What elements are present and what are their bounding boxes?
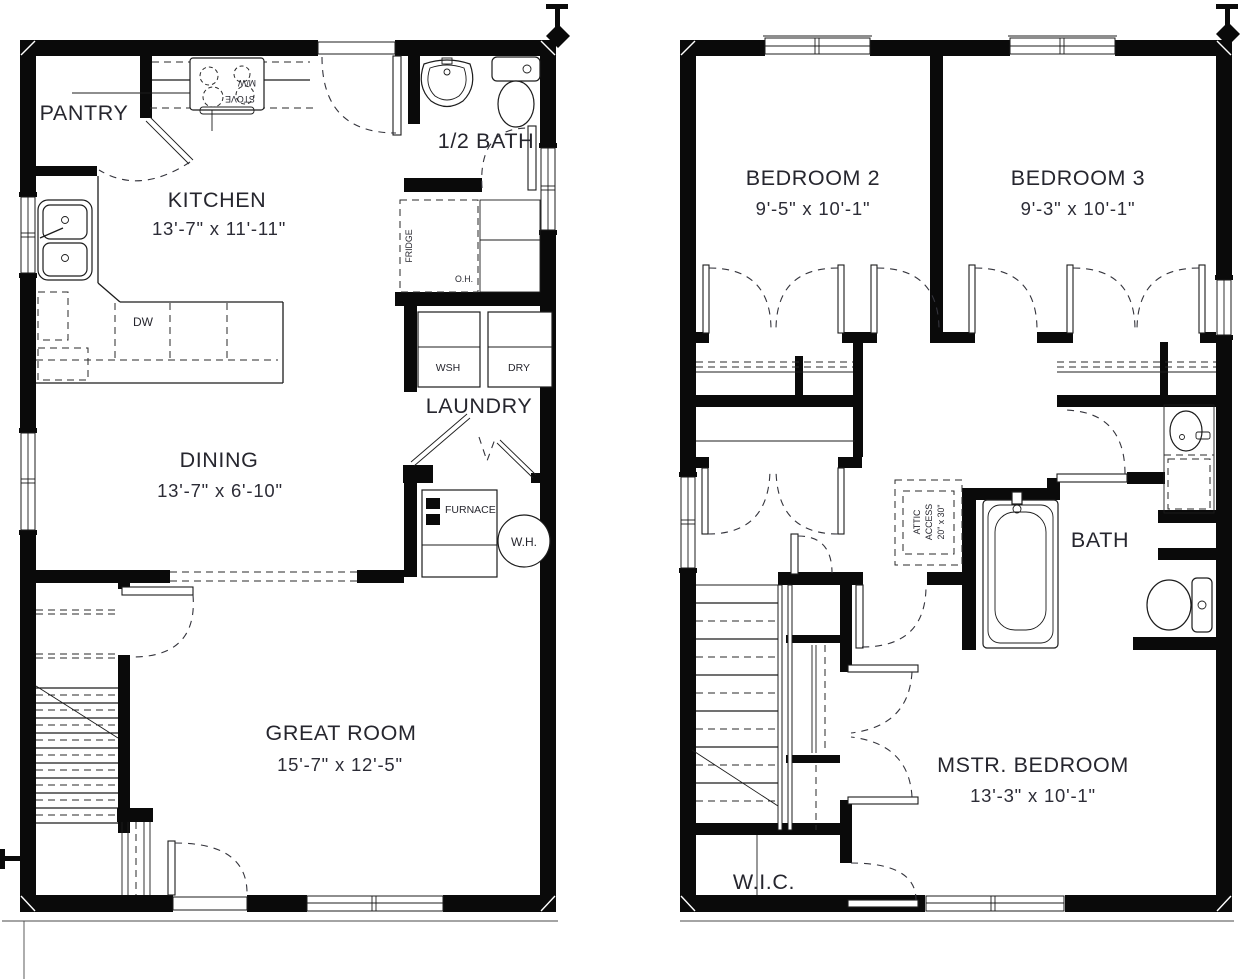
kitchen-label: KITCHEN <box>168 188 267 212</box>
floor2-stairs <box>692 585 792 830</box>
bedroom2-closet-doors <box>703 265 844 333</box>
wic-label: W.I.C. <box>733 870 795 894</box>
stove: M/W STOVE <box>190 58 264 114</box>
laundry-label: LAUNDRY <box>426 394 533 418</box>
overhead-label: O.H. <box>455 274 473 284</box>
half-bath-label: 1/2 BATH <box>438 129 534 153</box>
great-room-dims: 15'-7" x 12'-5" <box>277 754 403 775</box>
floor2-doors <box>702 265 1205 907</box>
attic-access: ATTIC ACCESS 20" x 30" <box>895 480 962 565</box>
kitchen-dims: 13'-7" x 11'-11" <box>152 218 286 239</box>
stair-door <box>122 587 193 657</box>
pantry-label: PANTRY <box>40 101 129 125</box>
bedroom3-label: BEDROOM 3 <box>1011 166 1145 190</box>
bedroom3-door <box>969 265 1037 333</box>
toilet2-icon <box>1147 578 1212 632</box>
washer-label: WSH <box>436 362 461 374</box>
vanity-sink-icon <box>1164 405 1214 513</box>
bath-window <box>1215 275 1233 340</box>
hall-window <box>679 472 697 573</box>
side-window <box>539 143 557 235</box>
floorplan-drawing: M/W STOVE DW <box>0 0 1252 980</box>
attic-access-line3: 20" x 30" <box>936 504 946 539</box>
great-room-window <box>307 896 443 911</box>
bedroom2-label: BEDROOM 2 <box>746 166 880 190</box>
dining-window <box>19 428 37 535</box>
water-heater-label: W.H. <box>511 535 537 549</box>
hall-closet-door <box>791 534 832 574</box>
master-entry-door <box>856 585 926 648</box>
great-room-label: GREAT ROOM <box>266 721 417 745</box>
linen-closet-doors <box>702 468 844 534</box>
floor2-plan: ATTIC ACCESS 20" x 30" BEDROOM 2 9'-5" x… <box>679 4 1240 912</box>
floor1-laundry: WSH DRY FURNACE W.H. <box>418 312 552 577</box>
floor1-plan: M/W STOVE DW <box>0 4 570 912</box>
pedestal-sink-icon <box>421 58 473 107</box>
bath-label: BATH <box>1071 528 1129 552</box>
bath-door <box>1057 410 1127 482</box>
front-entry-door <box>168 841 247 910</box>
bedroom2-dims: 9'-5" x 10'-1" <box>756 198 871 219</box>
furnace: FURNACE <box>422 490 497 577</box>
kitchen-window <box>19 192 37 278</box>
stove-label: STOVE <box>225 94 255 104</box>
attic-access-line2: ACCESS <box>924 504 934 540</box>
bedroom3-dims: 9'-3" x 10'-1" <box>1021 198 1136 219</box>
pantry-door <box>99 117 193 181</box>
rear-entry-door <box>318 42 401 135</box>
dining-label: DINING <box>180 448 259 472</box>
bedroom2-window <box>763 36 872 54</box>
bathtub-icon <box>983 492 1058 648</box>
dining-dims: 13'-7" x 6'-10" <box>157 480 283 501</box>
toilet-icon <box>492 57 540 127</box>
kitchen-sink <box>38 200 92 280</box>
master-label: MSTR. BEDROOM <box>937 753 1129 777</box>
fridge-label: FRIDGE <box>404 229 414 262</box>
floor1-labels: PANTRY KITCHEN 13'-7" x 11'-11" 1/2 BATH… <box>40 101 535 775</box>
floor1-stairs <box>36 610 150 895</box>
master-window <box>926 896 1064 911</box>
master-dims: 13'-3" x 10'-1" <box>970 785 1096 806</box>
cased-opening <box>170 572 357 581</box>
floor1-doors <box>99 42 536 910</box>
attic-access-line1: ATTIC <box>912 509 922 534</box>
furnace-label: FURNACE <box>445 504 496 516</box>
floorplan-page: M/W STOVE DW <box>0 0 1252 980</box>
water-heater: W.H. <box>498 515 550 567</box>
bedroom3-closet-doors <box>1067 265 1205 333</box>
fridge-area: FRIDGE O.H. <box>400 200 540 292</box>
master-closet-doors <box>848 665 918 804</box>
bedroom3-window <box>1008 36 1117 54</box>
floor2-closet-interiors <box>696 362 1216 895</box>
hose-bib-right-icon <box>1216 4 1240 46</box>
bedroom2-door <box>871 265 939 333</box>
dishwasher-label: DW <box>133 315 154 329</box>
dryer-label: DRY <box>508 362 530 374</box>
wic-door <box>848 863 918 907</box>
hose-bib-left-icon <box>0 849 21 869</box>
floor2-bath-fixtures: ATTIC ACCESS 20" x 30" <box>895 405 1214 648</box>
foundation-lines <box>2 921 1234 979</box>
microwave-label: M/W <box>237 78 256 88</box>
floor1-half-bath <box>421 57 540 127</box>
